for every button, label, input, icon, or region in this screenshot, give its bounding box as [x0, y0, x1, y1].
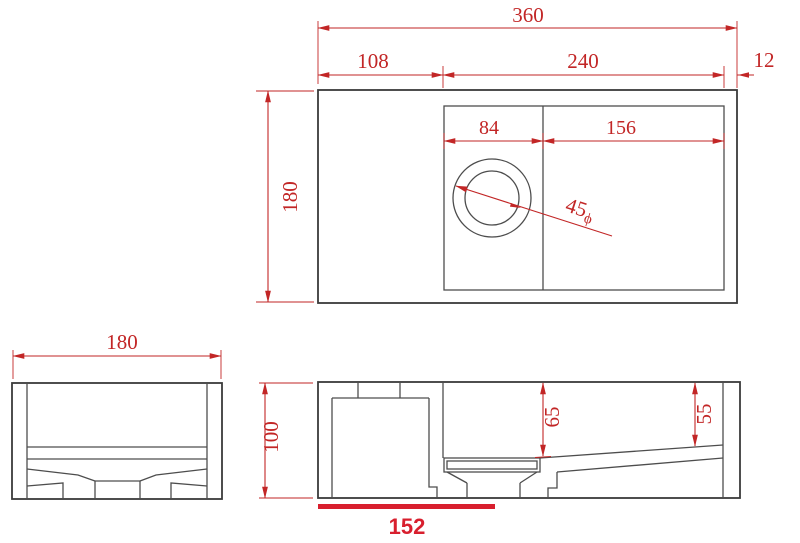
sink-technical-drawing: 360 108 240 12 84 156 180 45ϕ	[0, 0, 800, 543]
front-view-outline	[318, 382, 740, 498]
cavity-right-wall-step	[429, 398, 437, 498]
side-foot-right	[171, 483, 207, 499]
dim-basin-widths: 84 156	[444, 117, 724, 149]
front-view	[318, 382, 740, 498]
dim-label-360: 360	[512, 3, 544, 27]
under-basin-step	[548, 472, 557, 498]
basin-bottom-slope	[540, 445, 723, 458]
dim-label-65: 65	[540, 407, 564, 428]
dim-label-100: 100	[259, 421, 283, 453]
dim-depth-at-drain: 65	[535, 383, 564, 458]
dim-label-180-depth: 180	[278, 181, 302, 213]
side-drain-slope-right	[140, 469, 207, 481]
dim-top-depth: 180	[256, 91, 314, 302]
dim-side-width: 180	[13, 330, 221, 379]
dim-depth-at-right: 55	[692, 383, 716, 446]
dim-label-55: 55	[692, 404, 716, 425]
dim-label-45-phi: 45ϕ	[562, 193, 598, 228]
drain-flange-outer	[444, 458, 540, 472]
dim-label-180-side: 180	[106, 330, 138, 354]
side-view	[12, 383, 222, 499]
technical-drawing-page: 360 108 240 12 84 156 180 45ϕ	[0, 0, 800, 543]
arrow-diameter-inner	[510, 203, 521, 208]
drain-flange-inner	[447, 461, 537, 469]
dim-highlight-152: 152	[318, 504, 495, 539]
dim-drain-diameter: 45ϕ	[456, 186, 612, 236]
side-foot-left	[27, 483, 63, 499]
dim-label-108: 108	[357, 49, 389, 73]
arrow-12-left	[738, 72, 749, 78]
top-view	[318, 90, 737, 303]
under-basin-slope	[557, 458, 723, 472]
dim-label-12: 12	[754, 48, 775, 72]
dim-label-240: 240	[567, 49, 599, 73]
dim-label-156: 156	[606, 117, 636, 139]
dim-width-sections: 108 240 12	[318, 48, 775, 88]
top-view-outline	[318, 90, 737, 303]
dim-label-152: 152	[389, 514, 426, 539]
dim-label-84: 84	[479, 117, 499, 139]
dim-front-height: 100	[259, 383, 313, 498]
side-drain-slope-left	[27, 469, 95, 481]
highlight-bar	[318, 504, 495, 509]
